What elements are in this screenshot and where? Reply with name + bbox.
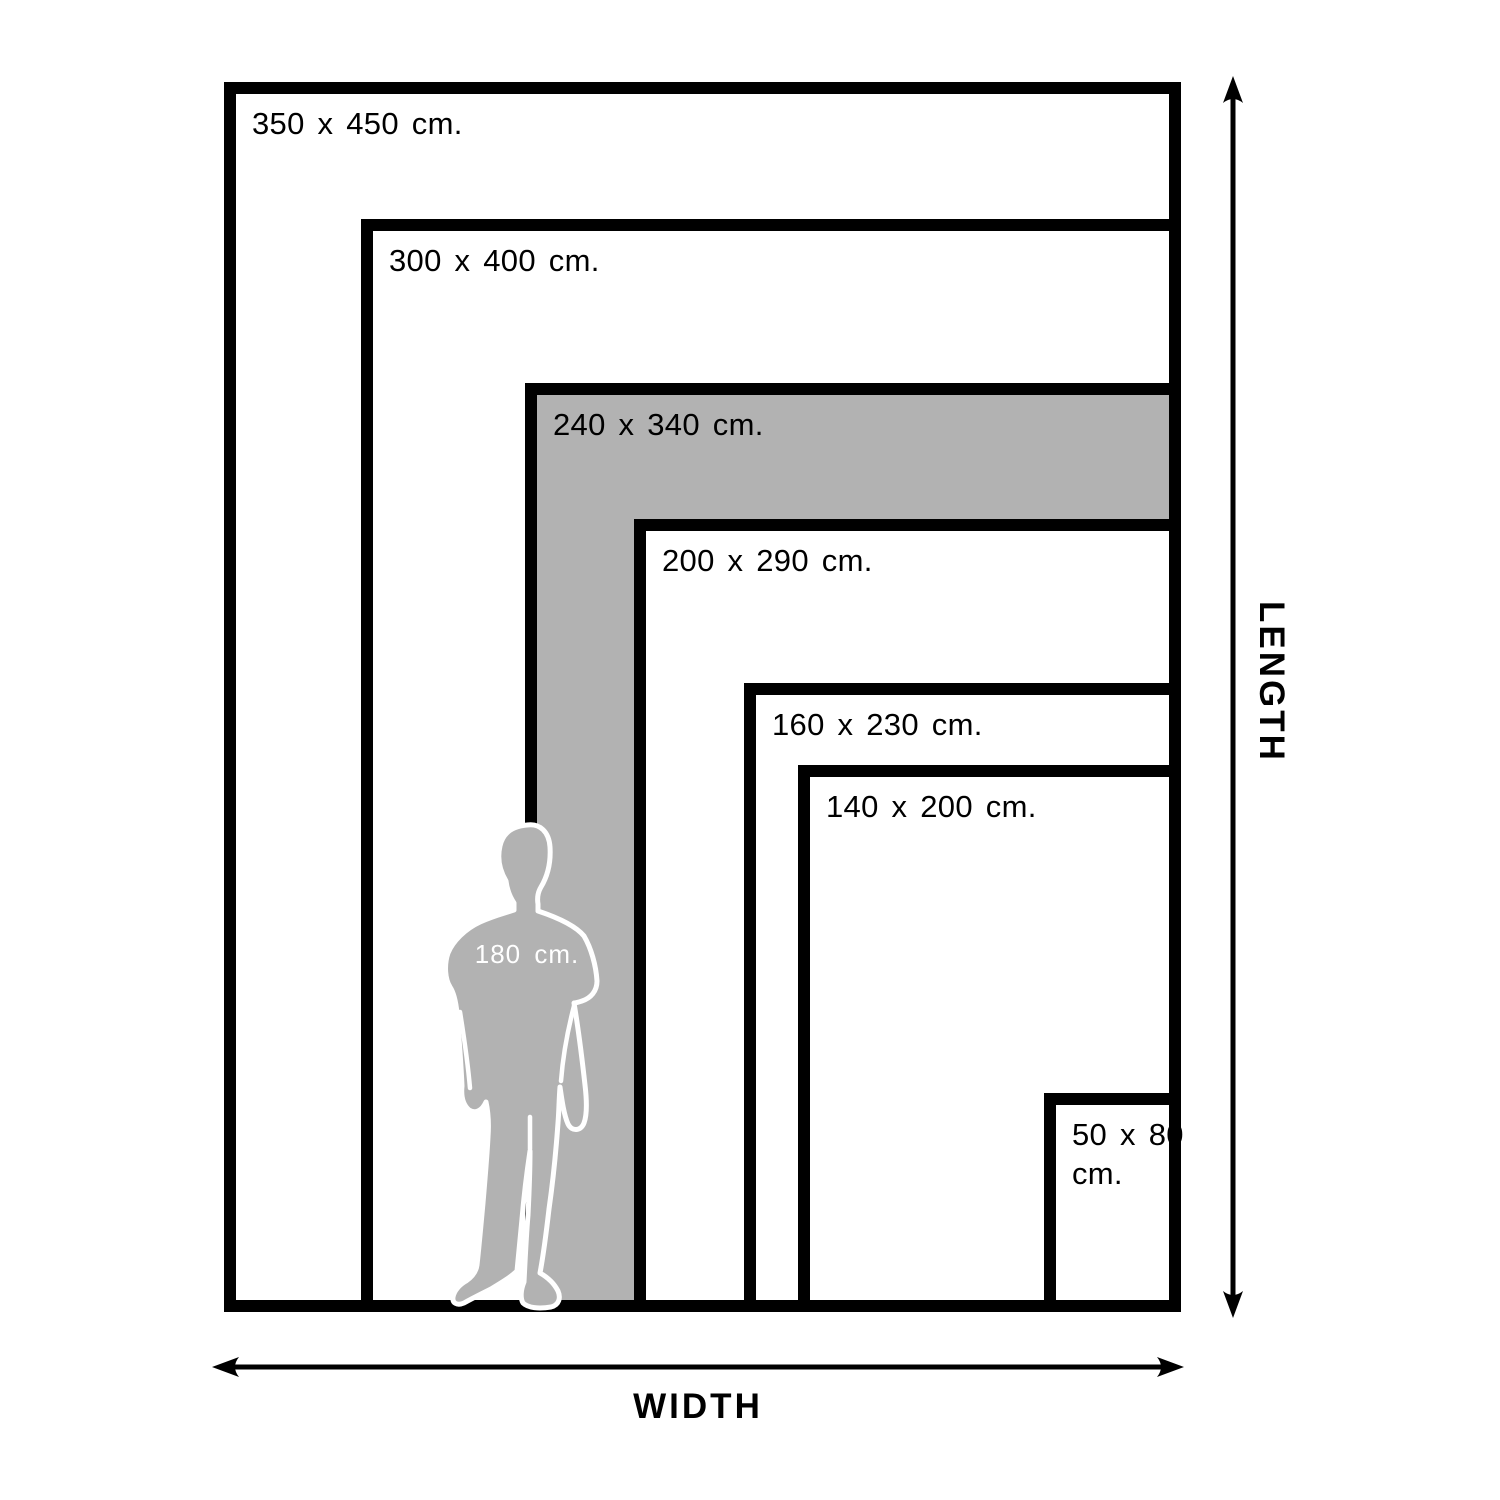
person-silhouette: 180 cm.: [435, 815, 625, 1320]
width-arrow-head-right: [1157, 1357, 1184, 1377]
width-arrow-head-left: [212, 1357, 239, 1377]
size-rect-50x80: 50 x 80 cm.: [1044, 1093, 1181, 1312]
size-comparison-diagram: 350 x 450 cm.300 x 400 cm.240 x 340 cm.2…: [0, 0, 1500, 1500]
size-label: 50 x 80 cm.: [1072, 1115, 1184, 1194]
size-label: 300 x 400 cm.: [389, 241, 600, 280]
length-arrow-head-bottom: [1223, 1291, 1243, 1318]
size-label: 350 x 450 cm.: [252, 104, 463, 143]
size-label: 140 x 200 cm.: [826, 787, 1037, 826]
size-label: 160 x 230 cm.: [772, 705, 983, 744]
size-label: 240 x 340 cm.: [553, 405, 764, 444]
person-height-label: 180 cm.: [475, 939, 580, 969]
size-label: 200 x 290 cm.: [662, 541, 873, 580]
length-arrow-head-top: [1223, 76, 1243, 103]
